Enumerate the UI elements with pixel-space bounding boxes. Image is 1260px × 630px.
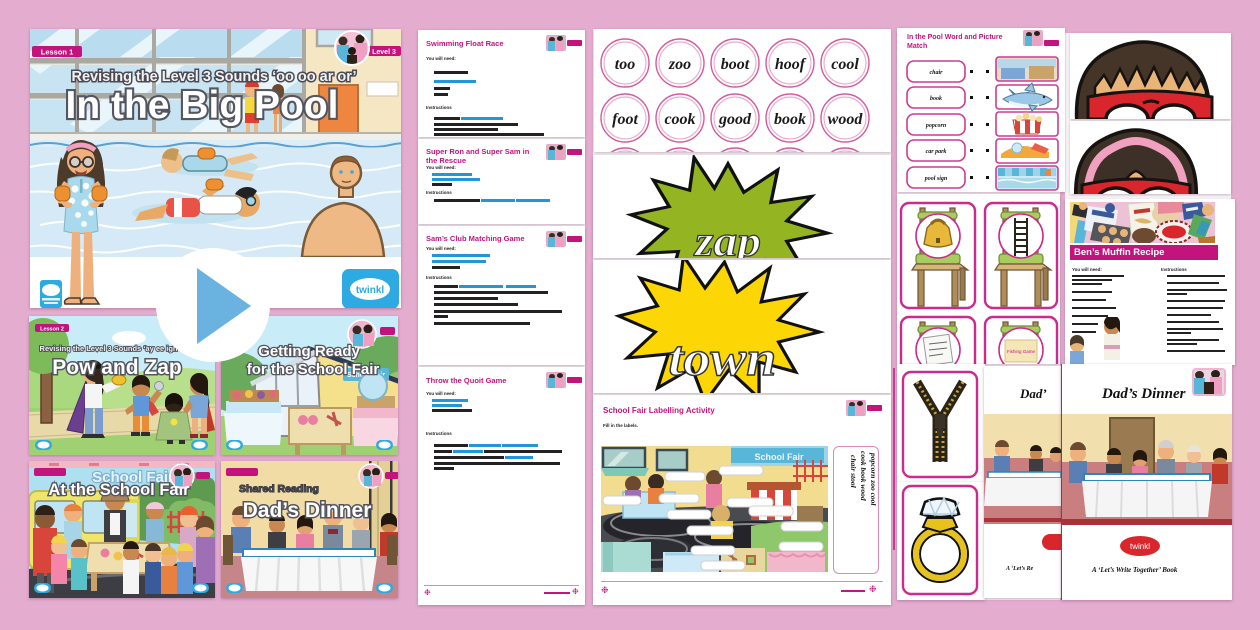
svg-text:wood: wood xyxy=(828,111,864,128)
svg-text:zoo: zoo xyxy=(668,56,691,73)
svg-text:popcorn: popcorn xyxy=(925,123,947,129)
svg-text:zap: zap xyxy=(693,218,761,258)
svg-text:Level 3: Level 3 xyxy=(372,49,396,56)
svg-text:Lesson 1: Lesson 1 xyxy=(41,48,74,57)
svg-text:cool: cool xyxy=(831,56,859,73)
svg-text:Shared Reading: Shared Reading xyxy=(239,483,319,495)
svg-text:boot: boot xyxy=(721,56,750,73)
svg-text:At the School Fair: At the School Fair xyxy=(48,481,190,499)
svg-text:foot: foot xyxy=(612,111,638,128)
svg-text:Revising the Level 3 Sounds ‘a: Revising the Level 3 Sounds ‘ay ee igh o… xyxy=(40,344,191,353)
svg-text:Fishing Game: Fishing Game xyxy=(1007,349,1036,354)
svg-text:In the Big Pool: In the Big Pool xyxy=(66,84,339,127)
svg-text:too: too xyxy=(615,56,635,73)
svg-text:cook book wood: cook book wood xyxy=(859,451,868,501)
svg-text:book: book xyxy=(774,111,806,128)
svg-text:cook: cook xyxy=(664,111,695,128)
svg-text:for the School Fair: for the School Fair xyxy=(247,361,380,378)
svg-text:Dad’s Dinner: Dad’s Dinner xyxy=(243,499,372,522)
svg-text:good: good xyxy=(718,111,752,128)
svg-text:Getting Ready: Getting Ready xyxy=(258,343,360,360)
svg-text:hoof: hoof xyxy=(775,56,807,73)
svg-text:popcorn zoo cool: popcorn zoo cool xyxy=(869,452,878,506)
svg-text:Revising the Level 3 Sounds ‘o: Revising the Level 3 Sounds ‘oo oo ar or… xyxy=(72,69,357,85)
svg-text:twinkl: twinkl xyxy=(1130,542,1150,551)
svg-text:pool sign: pool sign xyxy=(924,176,948,182)
svg-text:book: book xyxy=(930,96,942,102)
svg-text:chair: chair xyxy=(929,70,943,76)
svg-text:car park: car park xyxy=(926,149,947,155)
svg-text:twinkl: twinkl xyxy=(356,285,385,296)
svg-text:town: town xyxy=(668,332,776,387)
svg-text:chair stool: chair stool xyxy=(849,455,858,489)
svg-text:Lesson 2: Lesson 2 xyxy=(40,327,64,333)
svg-text:Pow and Zap: Pow and Zap xyxy=(52,356,182,379)
